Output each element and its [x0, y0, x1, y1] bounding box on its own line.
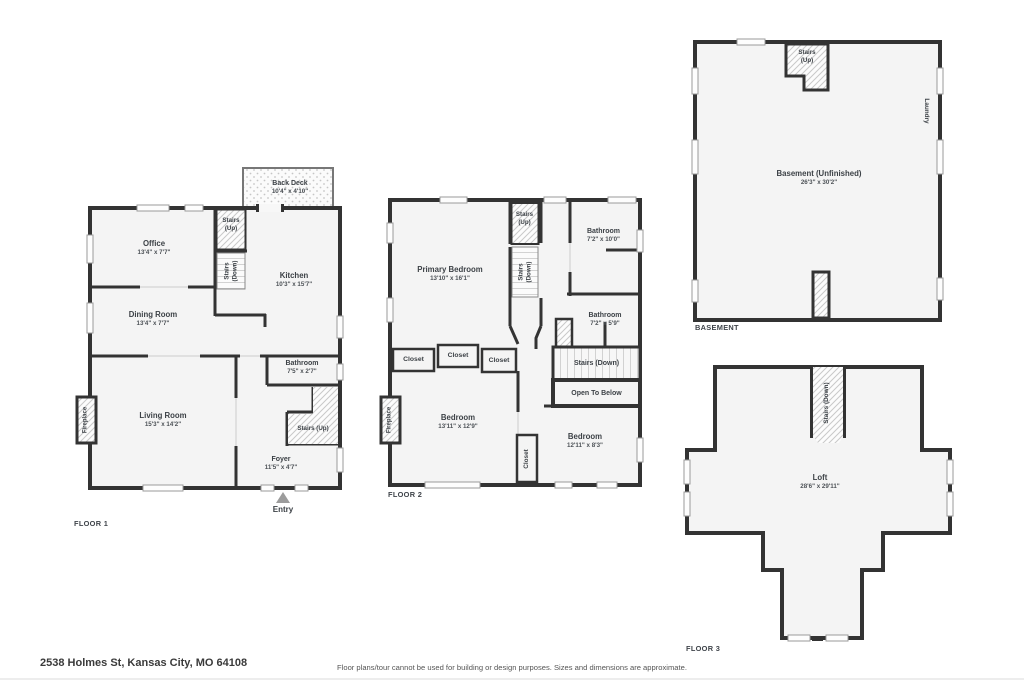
floor2-stairs-up-label: Stairs (Up) — [511, 211, 538, 227]
floor1-stairs-down-label: Stairs (Down) — [223, 253, 239, 289]
floor2-tag: FLOOR 2 — [388, 490, 422, 499]
basement-room-label: Basement (Unfinished) 26'3" x 30'2" — [739, 169, 899, 187]
bedroom-left-label: Bedroom 13'11" x 12'9" — [398, 413, 518, 431]
dining-room-label: Dining Room 13'4" x 7'7" — [93, 310, 213, 328]
floor2-bathroom-mid-label: Bathroom 7'2" x 5'9" — [570, 311, 640, 328]
floor1-tag: FLOOR 1 — [74, 519, 108, 528]
foyer-label: Foyer 11'5" x 4'7" — [243, 455, 319, 472]
laundry-label: Laundry — [922, 98, 930, 123]
floor2-stairs-down-label: Stairs (Down) — [553, 359, 640, 368]
floor3-walls — [684, 367, 953, 641]
back-deck-label: Back Deck 10'4" x 4'10" — [245, 179, 335, 196]
bottom-divider — [0, 678, 1024, 680]
office-label: Office 13'4" x 7'7" — [99, 239, 209, 257]
kitchen-label: Kitchen 10'3" x 15'7" — [249, 271, 339, 289]
floor3-tag: FLOOR 3 — [686, 644, 720, 653]
closet-b-label: Closet — [438, 352, 478, 361]
closet-c-label: Closet — [482, 357, 516, 366]
floor2-fireplace-label: Fireplace — [386, 407, 394, 433]
loft-label: Loft 28'6" x 29'11" — [760, 473, 880, 491]
living-room-label: Living Room 15'3" x 14'2" — [103, 411, 223, 429]
floor2-stairs-down-upper-label: Stairs (Down) — [517, 254, 533, 290]
basement-tag: BASEMENT — [695, 323, 739, 332]
disclaimer-text: Floor plans/tour cannot be used for buil… — [0, 663, 1024, 672]
floorplan-page: Back Deck 10'4" x 4'10" Office 13'4" x 7… — [0, 0, 1024, 682]
floor3-stairs-down-label: Stairs (Down) — [823, 382, 831, 423]
floor3-door-mark — [812, 636, 823, 641]
floor1-walls — [77, 168, 343, 503]
closet-a-label: Closet — [393, 356, 434, 365]
floor1-stairs-up2-box — [313, 387, 338, 444]
entry-label: Entry — [262, 505, 304, 514]
entry-arrow-icon — [276, 492, 290, 503]
floor1-fireplace-label: Fireplace — [82, 407, 90, 433]
basement-chimney-box — [813, 272, 829, 318]
floorplan-drawing — [0, 0, 1024, 682]
basement-stairs-up-label: Stairs (Up) — [792, 49, 822, 65]
floor1-stairs-up-top-label: Stairs (Up) — [216, 217, 246, 233]
floor1-stairs-up-label: Stairs (Up) — [287, 425, 339, 433]
primary-bedroom-label: Primary Bedroom 13'10" x 16'1" — [390, 265, 510, 283]
open-to-below-label: Open To Below — [553, 389, 640, 398]
floor1-bathroom-label: Bathroom 7'5" x 2'7" — [265, 359, 339, 376]
floor2-bathroom-top-label: Bathroom 7'2" x 10'0" — [570, 227, 637, 244]
bedroom-right-label: Bedroom 12'11" x 8'3" — [545, 432, 625, 450]
closet-d-label: Closet — [523, 449, 531, 469]
